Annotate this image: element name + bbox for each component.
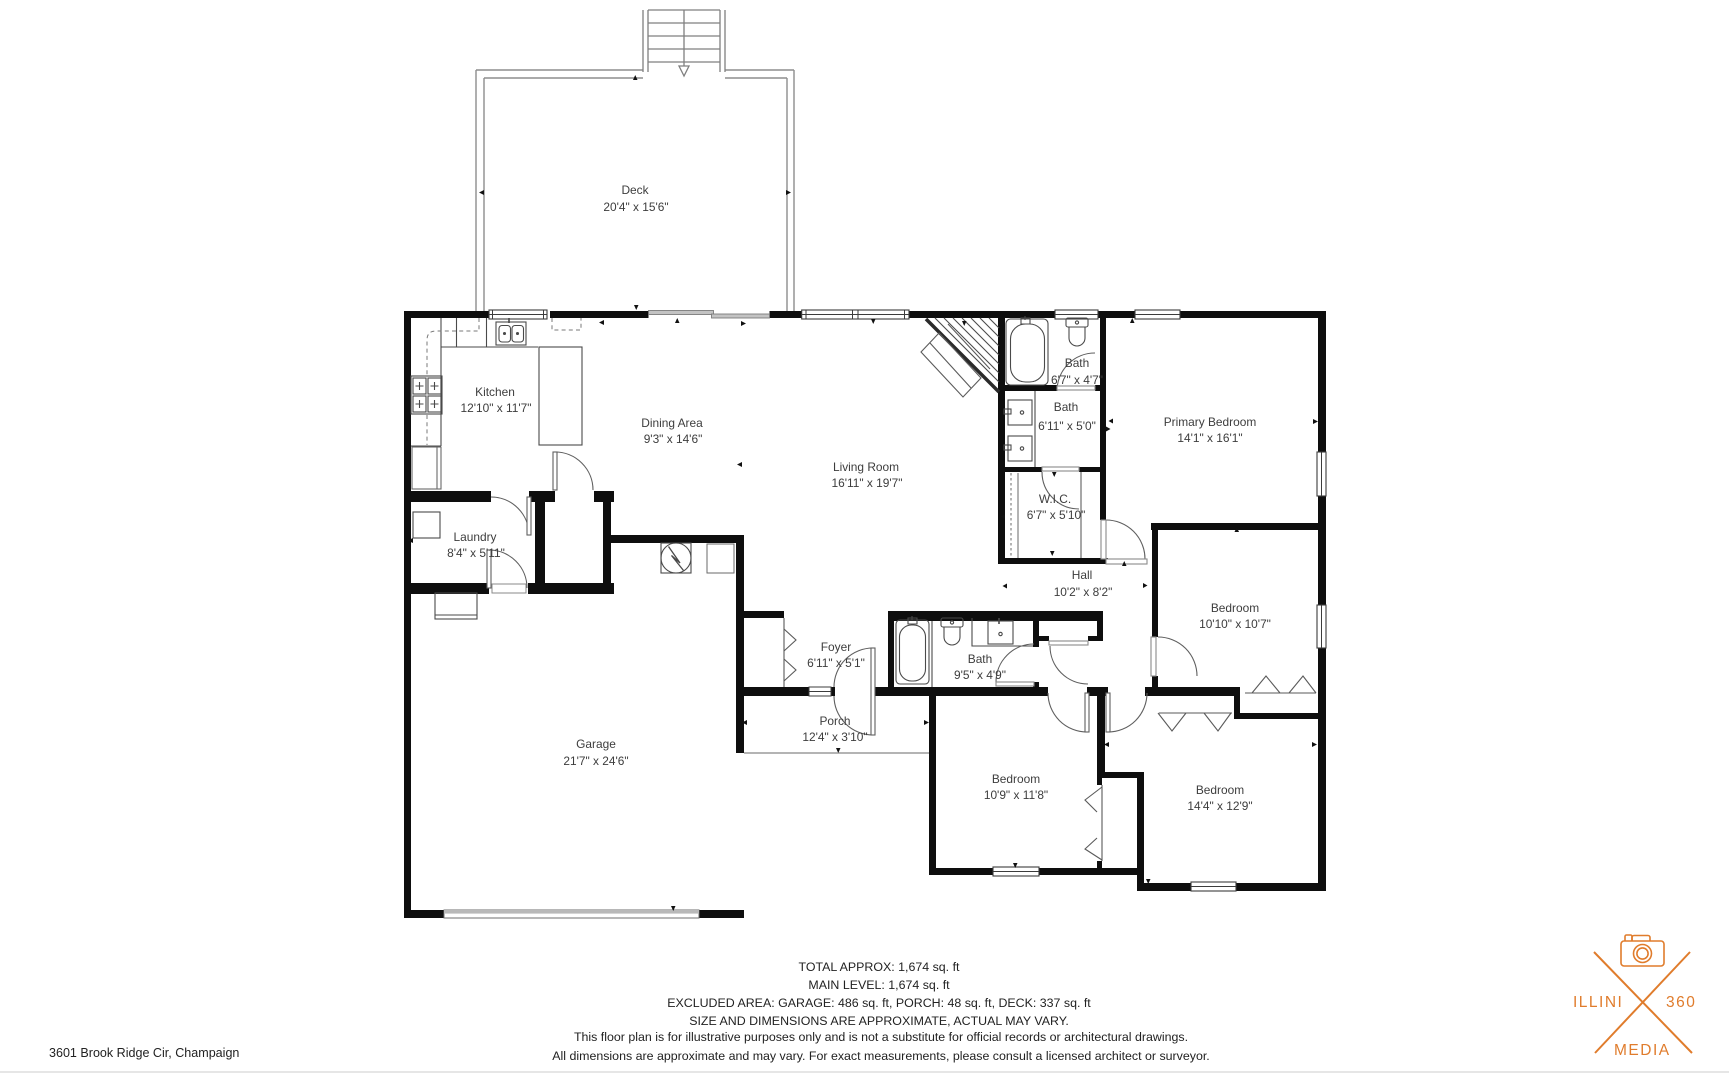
svg-text:Hall: Hall [1072, 568, 1092, 582]
svg-text:Bedroom: Bedroom [1211, 601, 1259, 615]
svg-text:W.I.C.: W.I.C. [1039, 492, 1071, 506]
svg-text:3601 Brook Ridge Cir, Champaig: 3601 Brook Ridge Cir, Champaign [49, 1046, 239, 1060]
svg-text:6'11" x 5'1": 6'11" x 5'1" [807, 656, 865, 670]
svg-text:MAIN LEVEL: 1,674 sq. ft: MAIN LEVEL: 1,674 sq. ft [808, 978, 950, 992]
svg-text:6'7" x 5'10": 6'7" x 5'10" [1027, 508, 1086, 522]
svg-text:Bath: Bath [968, 652, 992, 666]
svg-text:Kitchen: Kitchen [475, 385, 515, 399]
svg-text:MEDIA: MEDIA [1614, 1042, 1671, 1059]
svg-text:EXCLUDED AREA: GARAGE: 486 sq.: EXCLUDED AREA: GARAGE: 486 sq. ft, PORCH… [667, 996, 1091, 1010]
svg-text:10'2" x 8'2": 10'2" x 8'2" [1054, 585, 1113, 599]
svg-text:ILLINI: ILLINI [1573, 994, 1623, 1011]
svg-text:TOTAL APPROX: 1,674 sq. ft: TOTAL APPROX: 1,674 sq. ft [799, 960, 960, 974]
svg-text:Bath: Bath [1054, 400, 1078, 414]
svg-text:This floor plan is for illustr: This floor plan is for illustrative purp… [574, 1030, 1188, 1044]
svg-text:6'7" x 4'7": 6'7" x 4'7" [1051, 373, 1103, 387]
svg-text:Living Room: Living Room [833, 460, 899, 474]
svg-text:Primary Bedroom: Primary Bedroom [1164, 415, 1257, 429]
svg-text:12'4" x 3'10": 12'4" x 3'10" [802, 730, 867, 744]
svg-text:Laundry: Laundry [454, 530, 497, 544]
svg-text:10'9" x 11'8": 10'9" x 11'8" [984, 788, 1048, 802]
svg-text:Dining Area: Dining Area [641, 416, 703, 430]
svg-text:Porch: Porch [819, 714, 850, 728]
svg-text:16'11" x 19'7": 16'11" x 19'7" [832, 476, 903, 490]
svg-text:9'5" x 4'9": 9'5" x 4'9" [954, 668, 1006, 682]
svg-text:12'10" x 11'7": 12'10" x 11'7" [461, 401, 532, 415]
svg-text:20'4" x 15'6": 20'4" x 15'6" [603, 200, 668, 214]
svg-text:8'4" x 5'11": 8'4" x 5'11" [447, 546, 505, 560]
svg-text:SIZE AND DIMENSIONS ARE APPROX: SIZE AND DIMENSIONS ARE APPROXIMATE, ACT… [689, 1014, 1069, 1028]
svg-text:21'7" x 24'6": 21'7" x 24'6" [563, 754, 628, 768]
svg-text:Garage: Garage [576, 737, 616, 751]
svg-text:Foyer: Foyer [821, 640, 851, 654]
svg-text:14'4" x 12'9": 14'4" x 12'9" [1187, 799, 1252, 813]
svg-text:10'10" x 10'7": 10'10" x 10'7" [1199, 617, 1271, 631]
svg-text:Bedroom: Bedroom [992, 772, 1040, 786]
svg-text:Bath: Bath [1065, 356, 1089, 370]
svg-text:14'1" x 16'1": 14'1" x 16'1" [1177, 431, 1242, 445]
svg-text:Deck: Deck [621, 183, 648, 197]
svg-text:6'11" x 5'0": 6'11" x 5'0" [1038, 419, 1096, 433]
svg-text:360: 360 [1666, 994, 1696, 1011]
svg-text:9'3" x 14'6": 9'3" x 14'6" [644, 432, 703, 446]
svg-text:Bedroom: Bedroom [1196, 783, 1244, 797]
svg-text:All dimensions are approximate: All dimensions are approximate and may v… [552, 1049, 1209, 1063]
